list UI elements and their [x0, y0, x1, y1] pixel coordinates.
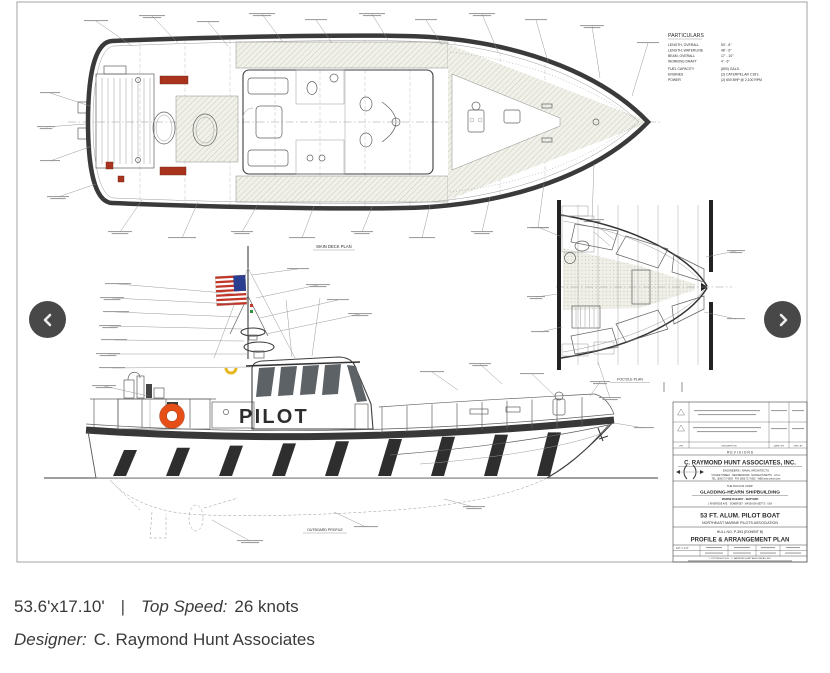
- copyright-line: © COPYRIGHT 2011 · C. RAYMOND HUNT ASSOC…: [709, 557, 772, 560]
- revisions-header: R E V I S I O N S: [727, 451, 754, 455]
- break-line: [557, 200, 561, 370]
- break-line: [709, 302, 713, 370]
- red-deck-fitting: [160, 167, 186, 175]
- svg-text:53' - 6": 53' - 6": [721, 43, 732, 47]
- project-title: 53 FT. ALUM. PILOT BOAT: [700, 513, 780, 520]
- nav-light-red: [250, 304, 253, 307]
- client-name: NORTHEAST MARINE PILOTS ASSOCIATION: [702, 521, 778, 525]
- designer-value: C. Raymond Hunt Associates: [94, 630, 315, 650]
- svg-text:ENGINEERS / NAVAL ARCHITECTS: ENGINEERS / NAVAL ARCHITECTS: [723, 469, 769, 473]
- svg-text:MARINE RAILWAY · SHIPYARD: MARINE RAILWAY · SHIPYARD: [722, 498, 759, 501]
- nav-light-green: [250, 310, 253, 313]
- svg-text:BEAM, OVERALL: BEAM, OVERALL: [668, 54, 695, 58]
- svg-text:WORKING DRAFT: WORKING DRAFT: [668, 60, 697, 64]
- svg-text:FUEL CAPACITY: FUEL CAPACITY: [668, 67, 695, 71]
- scale-value: 1/2" = 1'-0": [676, 546, 689, 550]
- caption-specs-line: 53.6'x17.10' | Top Speed: 26 knots: [14, 597, 830, 617]
- particulars-title: PARTICULARS: [668, 33, 704, 39]
- caption: 53.6'x17.10' | Top Speed: 26 knots Desig…: [0, 570, 830, 650]
- main-deck-plan-label: MAIN DECK PLAN: [316, 244, 351, 249]
- sheet-title: PROFILE & ARRANGEMENT PLAN: [691, 538, 790, 544]
- hull-number: HULL NO. P-393 (EXHIBIT B): [717, 530, 764, 534]
- svg-text:THE DUCLOS CORP.: THE DUCLOS CORP.: [727, 484, 753, 488]
- drawing-carousel: MAIN DECK PLAN: [0, 0, 830, 570]
- top-speed-value: 26 knots: [234, 597, 298, 617]
- chevron-right-icon: [775, 312, 791, 328]
- pilot-boat-drawing: MAIN DECK PLAN: [0, 0, 830, 570]
- boat-detail-page: MAIN DECK PLAN: [0, 0, 830, 673]
- break-line: [709, 200, 713, 272]
- svg-text:(2) 600 BHP @ 2,100 RPM: (2) 600 BHP @ 2,100 RPM: [721, 78, 762, 82]
- svg-text:5 RIVER STREET · NEW BEDFORD ·: 5 RIVER STREET · NEW BEDFORD · MASSACHUS…: [712, 474, 781, 477]
- svg-text:POWER: POWER: [668, 78, 681, 82]
- svg-text:4' - 6": 4' - 6": [721, 60, 730, 64]
- company-name: C. RAYMOND HUNT ASSOCIATES, INC.: [684, 461, 796, 467]
- us-flag-icon: [215, 275, 246, 306]
- top-speed-label: Top Speed:: [141, 597, 227, 617]
- builder-name: GLADDING-HEARN SHIPBUILDING: [700, 490, 780, 496]
- svg-text:DATE / BY: DATE / BY: [774, 445, 785, 448]
- carousel-next-button[interactable]: [764, 301, 801, 338]
- designer-label: Designer:: [14, 630, 87, 650]
- svg-text:LENGTH, WATERLINE: LENGTH, WATERLINE: [668, 49, 704, 53]
- chevron-left-icon: [40, 312, 56, 328]
- caption-designer-line: Designer: C. Raymond Hunt Associates: [14, 630, 830, 650]
- svg-text:(2) CATERPILLAR C18's: (2) CATERPILLAR C18's: [721, 73, 759, 77]
- focsle-plan-label: FOC'S'LE PLAN: [617, 378, 643, 382]
- svg-text:LTR.: LTR.: [679, 446, 684, 448]
- pilot-hull-lettering: PILOT: [239, 406, 309, 428]
- caption-divider: |: [121, 597, 125, 617]
- svg-text:CHK / BY: CHK / BY: [793, 446, 803, 448]
- red-deck-fitting: [160, 76, 188, 84]
- svg-text:DESCRIPTION: DESCRIPTION: [722, 446, 737, 448]
- boat-dimensions: 53.6'x17.10': [14, 597, 105, 617]
- svg-text:17' - 10": 17' - 10": [721, 54, 734, 58]
- outboard-profile-label: OUTBOARD PROFILE: [307, 528, 343, 532]
- life-ring-icon: [160, 404, 185, 429]
- svg-text:(800) GALS.: (800) GALS.: [721, 67, 740, 71]
- svg-text:TEL. (508) 717-0600 · FAX (508: TEL. (508) 717-0600 · FAX (508) 717-0602…: [712, 478, 781, 481]
- svg-text:ENGINES: ENGINES: [668, 73, 684, 77]
- svg-text:1 RIVERSIDE AVE. · SOMERSET ·: 1 RIVERSIDE AVE. · SOMERSET · MASSACHUSE…: [708, 502, 772, 505]
- svg-text:48' - 6": 48' - 6": [721, 49, 732, 53]
- carousel-prev-button[interactable]: [29, 301, 66, 338]
- svg-text:LENGTH, OVERALL: LENGTH, OVERALL: [668, 43, 699, 47]
